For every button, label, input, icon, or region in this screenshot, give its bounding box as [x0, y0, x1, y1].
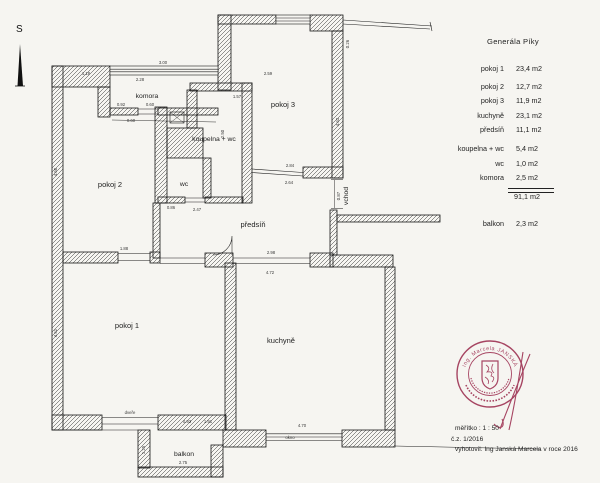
legend-room-area: 2,3 m2 [516, 219, 538, 228]
scale-text: měřítko : 1 : 50 [455, 424, 578, 435]
dimension-label: 2.75 [179, 460, 188, 465]
dimension-label: 2.98 [267, 250, 276, 255]
room-label-pokoj-2: pokoj 2 [98, 180, 122, 189]
dimension-label: 4.58 [53, 167, 58, 176]
room-label-kuchyne: kuchyně [267, 336, 295, 345]
drawing-info-block: měřítko : 1 : 50 č.z. 1/2016 vyhotovil: … [455, 424, 578, 456]
dimension-label: 0.87 [336, 191, 341, 200]
legend-row: wc 1,0 m2 [434, 159, 594, 168]
room-label-wc: wc [179, 181, 189, 188]
legend-room-label: kuchyně [434, 111, 504, 120]
legend-row: kuchyně 23,1 m2 [434, 111, 594, 120]
legend-room-area: 23,1 m2 [516, 111, 542, 120]
dimension-label: 1.91 [204, 419, 213, 424]
legend-room-label: komora [434, 173, 504, 182]
room-label-balkon: balkon [174, 451, 194, 458]
dimension-label: 0.86 [167, 205, 176, 210]
legend-row: pokoj 2 12,7 m2 [434, 82, 594, 91]
dimension-label: 2.47 [193, 207, 202, 212]
dimension-label: 2.84 [286, 163, 295, 168]
stamp-emblem-shield [482, 361, 498, 389]
dimension-label: 4.70 [298, 423, 307, 428]
room-label-koupelna: koupelna + wc [192, 136, 236, 143]
dimension-label: 2.50 [220, 129, 225, 138]
room-labels: komora pokoj 2 pokoj 3 koupelna + wc wc … [98, 93, 350, 458]
legend-row: pokoj 3 11,9 m2 [434, 96, 594, 105]
legend-room-label: pokoj 2 [434, 82, 504, 91]
legend-room-area: 11,1 m2 [516, 125, 541, 134]
windows-and-openings [63, 15, 540, 449]
north-arrow: S [15, 24, 25, 86]
room-label-pokoj-3: pokoj 3 [271, 100, 295, 109]
dimension-label: 0.93 [183, 419, 192, 424]
legend-room-area: 1,0 m2 [516, 159, 538, 168]
north-arrow-needle [18, 44, 24, 86]
door-swing-arc [213, 236, 232, 255]
legend-room-label: wc [434, 159, 504, 168]
dimension-label: 1.57 [233, 94, 242, 99]
legend-row: koupelna + wc 5,4 m2 [434, 144, 594, 153]
room-label-vchod: vchod [343, 187, 350, 205]
reference-number: č.z. 1/2016 [451, 435, 578, 446]
scanned-floor-plan-page: { "north": {"label": "S"}, "legend": { "… [0, 0, 600, 483]
legend-row: předsíň 11,1 m2 [434, 125, 594, 134]
dimension-label: 4.52 [53, 328, 58, 337]
dimension-label: 1.18 [82, 71, 91, 76]
legend-room-area: 2,5 m2 [516, 173, 538, 182]
legend-room-label: pokoj 3 [434, 96, 504, 105]
author-text: vyhotovil: Ing Janská Marcela v roce 201… [455, 445, 578, 456]
north-label: S [16, 24, 23, 35]
dimension-label: 4.72 [266, 270, 275, 275]
surveyor-stamp: Ing. Marcela JANSKÁ [457, 341, 530, 430]
dimension-label: 1.25 [141, 445, 146, 454]
dimension-label: 0.60 [127, 118, 136, 123]
room-label-predsin: předsíň [240, 220, 265, 229]
room-label-pokoj-1: pokoj 1 [115, 321, 139, 330]
legend-room-area: 5,4 m2 [516, 144, 538, 153]
dimension-label: 1.88 [120, 246, 129, 251]
dimension-label: 0.92 [117, 102, 126, 107]
legend-total-area: 91,1 m2 [514, 192, 540, 201]
annotation-dvere: dveře [125, 410, 136, 415]
legend-room-area: 23,4 m2 [516, 64, 542, 73]
legend-room-area: 11,9 m2 [516, 96, 541, 105]
legend-room-label: koupelna + wc [434, 144, 504, 153]
legend-row: pokoj 1 23,4 m2 [434, 64, 594, 73]
legend-row: komora 2,5 m2 [434, 173, 594, 182]
room-label-komora: komora [136, 93, 159, 100]
dimension-label: 4.63 [335, 117, 340, 126]
dimension-label: 2.59 [264, 71, 273, 76]
dimension-label: 0.60 [146, 102, 155, 107]
dimension-label: 2.64 [285, 180, 294, 185]
legend-room-label: předsíň [434, 125, 504, 134]
legend-title: Generála Píky [458, 37, 568, 46]
legend-room-label: pokoj 1 [434, 64, 504, 73]
dimension-label: 2.28 [136, 77, 145, 82]
legend-room-area: 12,7 m2 [516, 82, 542, 91]
walls [52, 15, 440, 477]
dimension-label: 0.26 [345, 39, 350, 48]
dimension-label: 3.00 [159, 60, 168, 65]
annotation-okno: okno [285, 435, 295, 440]
legend-room-label: balkon [434, 219, 504, 228]
legend-balcony-row: balkon 2,3 m2 [434, 219, 594, 228]
